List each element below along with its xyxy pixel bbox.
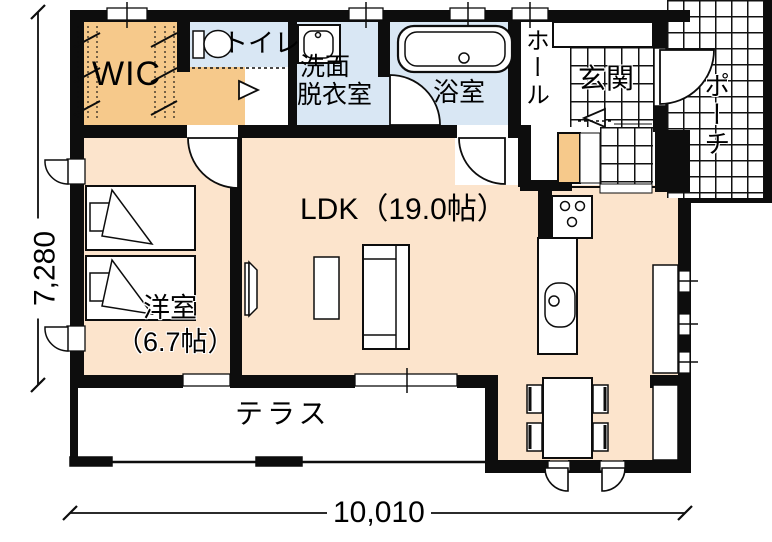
entrance-closet [558, 133, 580, 183]
wic-label: WIC [92, 56, 161, 93]
toilet-label: トイレ [222, 29, 300, 58]
bathtub-icon [398, 26, 512, 72]
entrance-label: 玄関 [578, 64, 634, 95]
window-icon [183, 368, 457, 393]
washroom-label-line1: 洗面 [300, 54, 372, 82]
tv-icon [245, 262, 257, 316]
sofa-icon [363, 245, 409, 349]
low-table-icon [314, 257, 339, 319]
bedroom-label: 洋室 [143, 294, 197, 324]
entrance-closet-front [580, 133, 600, 183]
bathroom-label: 浴室 [433, 78, 485, 107]
kitchen-cabinet-upper [653, 265, 678, 373]
entrance-step [600, 184, 652, 193]
porch-label: ポーチ [701, 72, 730, 182]
bedroom-size-label: （6.7帖） [116, 328, 235, 358]
hall-label: ホール [521, 28, 547, 138]
washroom-label: 洗面 脱衣室 [300, 54, 372, 109]
shoe-cabinet [553, 22, 653, 47]
dimension-width-label: 10,010 [327, 496, 431, 529]
floor-plan: WIC トイレ 洗面 脱衣室 浴室 ホール 玄関 ポーチ LDK（19.0帖） … [0, 0, 772, 542]
dimension-height-label: 7,280 [29, 219, 62, 319]
kitchen-sink-icon [538, 238, 577, 354]
terrace-label: テラス [235, 399, 330, 430]
ldk-label: LDK（19.0帖） [300, 193, 507, 226]
stove-icon [552, 196, 592, 238]
kitchen-cabinet-lower [653, 385, 678, 460]
washroom-label-line2: 脱衣室 [297, 82, 372, 110]
dining-table-icon [543, 378, 592, 458]
